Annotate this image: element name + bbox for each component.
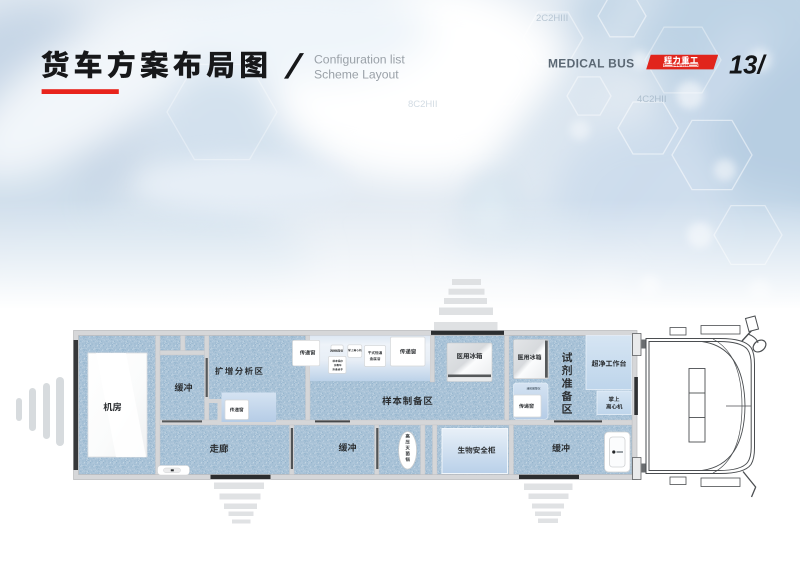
svg-text:Scheme Layout: Scheme Layout <box>314 68 399 82</box>
svg-text:CLWHI: CLWHI <box>674 64 689 68</box>
svg-text:4C2HII: 4C2HII <box>637 94 667 105</box>
svg-text:8C2HII: 8C2HII <box>408 99 438 110</box>
svg-text:MEDICAL BUS: MEDICAL BUS <box>548 56 634 70</box>
svg-text:Configuration list: Configuration list <box>314 53 405 67</box>
svg-text:2C2HIII: 2C2HIII <box>536 13 568 24</box>
svg-text:13/: 13/ <box>729 52 767 80</box>
